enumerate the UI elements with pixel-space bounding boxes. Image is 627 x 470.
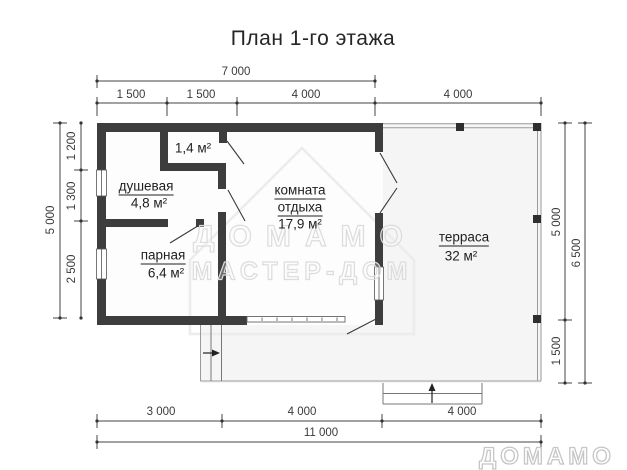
room-lounge-name-line2: отдыха (278, 200, 323, 217)
dim-right-1: 5 000 (551, 208, 563, 237)
dim-bottom-3: 4 000 (448, 406, 477, 418)
dim-bottom-total: 11 000 (304, 427, 338, 439)
room-closet-area: 1,4 м² (175, 141, 211, 156)
dim-bottom-2: 4 000 (288, 406, 317, 418)
watermark-text-line2: МАСТЕР-ДОМ (192, 258, 413, 287)
dim-top-3: 4 000 (292, 89, 321, 101)
brand-logo: ДОМАМО (479, 443, 615, 470)
glazing-strip (247, 317, 345, 323)
room-lounge-area: 17,9 м² (278, 217, 322, 232)
dim-left-3: 2 500 (66, 255, 78, 284)
steps-bottom (383, 383, 482, 404)
dim-top-total: 7 000 (222, 66, 251, 78)
room-steam-area: 6,4 м² (148, 266, 184, 281)
room-lounge-name-line1: комната (274, 183, 325, 200)
dim-left-1: 1 200 (66, 132, 78, 161)
dim-left-total: 5 000 (45, 206, 57, 235)
dim-left-2: 1 300 (66, 182, 78, 211)
page-title: План 1-го этажа (231, 27, 395, 51)
room-steam-name: парная (141, 248, 186, 265)
dim-top-1: 1 500 (117, 89, 146, 101)
room-terrace-area: 32 м² (445, 249, 478, 264)
dim-bottom-1: 3 000 (147, 406, 176, 418)
dim-right-2: 1 500 (551, 337, 563, 366)
room-shower-name: душевая (119, 179, 174, 196)
room-terrace-name: терраса (439, 230, 489, 247)
dim-right-total: 6 500 (571, 239, 583, 268)
room-shower-area: 4,8 м² (131, 196, 167, 211)
floor-plan-page: ДОМАМО МАСТЕР-ДОМ ДОМАМО План 1-го этажа… (0, 0, 627, 470)
dim-top-4: 4 000 (444, 89, 473, 101)
dim-top-2: 1 500 (187, 89, 216, 101)
